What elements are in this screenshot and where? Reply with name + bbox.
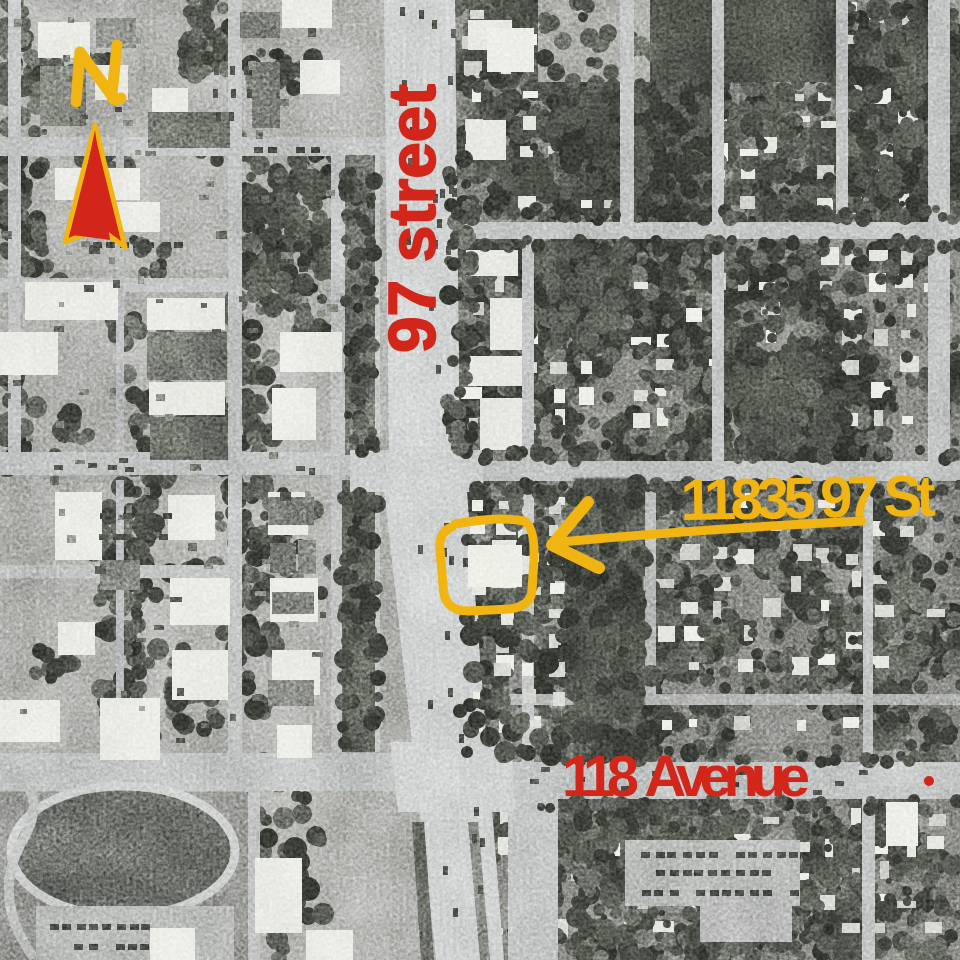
svg-text:11835 97 St: 11835 97 St bbox=[680, 463, 936, 532]
svg-text:118 Avenue: 118 Avenue bbox=[562, 743, 810, 808]
svg-text:97 street: 97 street bbox=[375, 83, 449, 353]
